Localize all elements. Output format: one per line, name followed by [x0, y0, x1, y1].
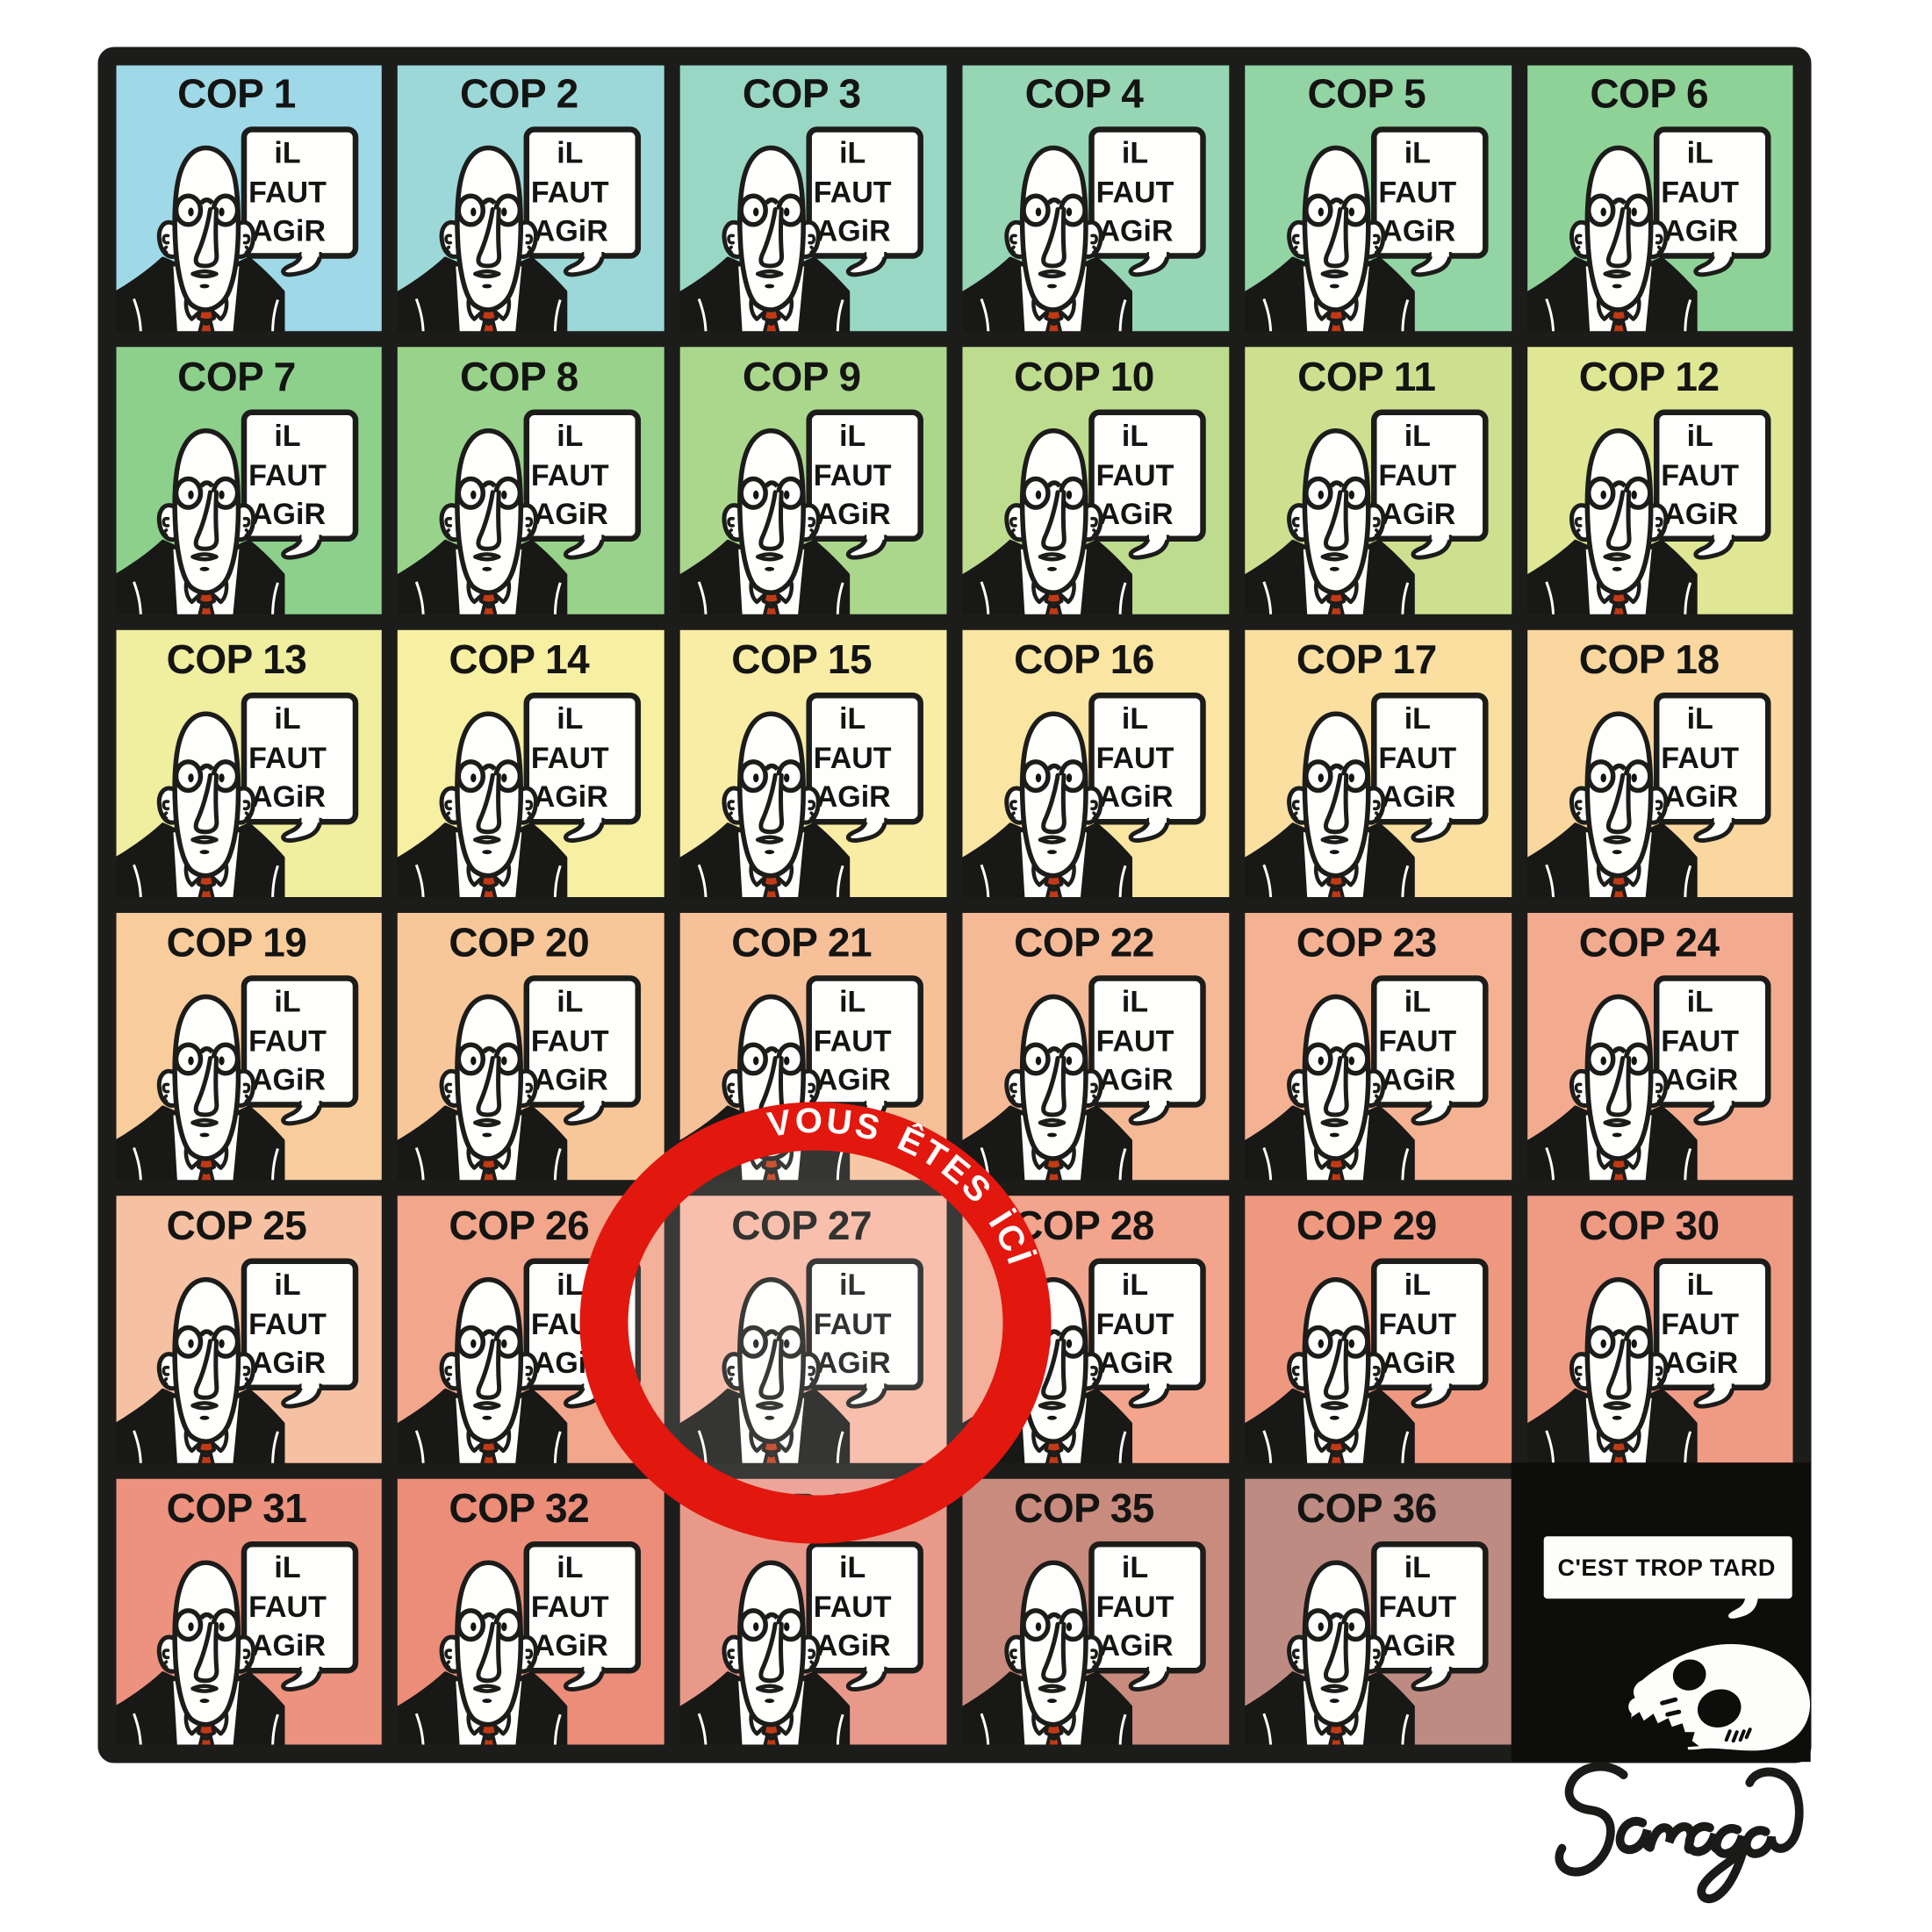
svg-text:COP 16: COP 16 — [1014, 636, 1154, 682]
svg-text:COP 8: COP 8 — [460, 354, 578, 399]
svg-text:COP 31: COP 31 — [167, 1485, 307, 1531]
svg-text:COP 26: COP 26 — [449, 1203, 589, 1248]
svg-text:COP 5: COP 5 — [1307, 71, 1426, 117]
svg-text:COP 9: COP 9 — [743, 354, 861, 399]
svg-text:C'EST TROP TARD: C'EST TROP TARD — [1557, 1555, 1775, 1581]
svg-text:COP 32: COP 32 — [449, 1485, 589, 1531]
svg-text:COP 15: COP 15 — [731, 636, 872, 682]
svg-text:COP 36: COP 36 — [1296, 1485, 1437, 1531]
svg-text:COP 23: COP 23 — [1296, 920, 1437, 966]
svg-text:COP 4: COP 4 — [1025, 71, 1145, 117]
svg-text:COP 12: COP 12 — [1579, 354, 1720, 399]
svg-text:COP 6: COP 6 — [1590, 71, 1708, 117]
svg-text:COP 1: COP 1 — [177, 71, 296, 117]
svg-text:COP 28: COP 28 — [1014, 1203, 1154, 1248]
svg-text:COP 22: COP 22 — [1014, 920, 1154, 966]
svg-text:COP 3: COP 3 — [743, 71, 861, 117]
svg-text:COP 10: COP 10 — [1014, 354, 1154, 399]
svg-text:COP 29: COP 29 — [1296, 1203, 1437, 1248]
svg-text:COP 14: COP 14 — [449, 636, 590, 682]
svg-text:COP 13: COP 13 — [167, 636, 307, 682]
svg-text:COP 17: COP 17 — [1296, 636, 1437, 682]
svg-text:COP 11: COP 11 — [1297, 354, 1435, 399]
svg-text:COP 19: COP 19 — [167, 920, 307, 966]
svg-text:COP 35: COP 35 — [1014, 1485, 1154, 1531]
svg-text:COP 20: COP 20 — [449, 920, 589, 966]
svg-text:COP 24: COP 24 — [1579, 920, 1720, 966]
svg-text:COP 21: COP 21 — [731, 920, 872, 966]
svg-text:COP 30: COP 30 — [1579, 1203, 1720, 1248]
svg-text:COP 25: COP 25 — [167, 1203, 307, 1248]
svg-text:COP 2: COP 2 — [460, 71, 578, 117]
svg-text:COP 7: COP 7 — [177, 354, 296, 399]
svg-text:COP 18: COP 18 — [1579, 636, 1720, 682]
